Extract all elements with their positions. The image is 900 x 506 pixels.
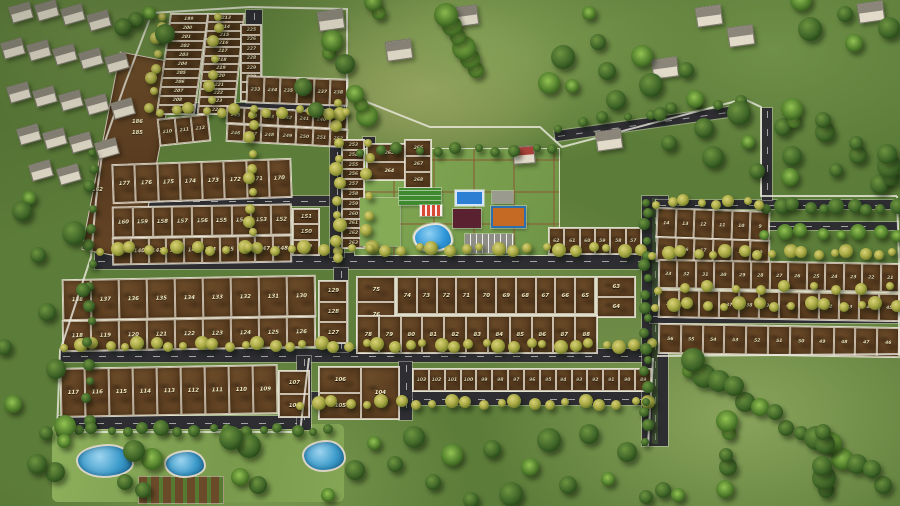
plot-136[interactable]: 136 <box>119 279 148 319</box>
plot-number: 81 <box>430 332 438 338</box>
plot-54[interactable]: 54 <box>702 325 724 354</box>
plot-117[interactable]: 117 <box>61 368 86 416</box>
plot-113[interactable]: 113 <box>157 367 182 415</box>
plot-175[interactable]: 175 <box>157 163 181 202</box>
villa-roof <box>59 91 80 103</box>
flowering-tree <box>744 197 752 205</box>
tree <box>308 102 324 118</box>
plot-number: 219 <box>216 66 226 71</box>
palm-tree <box>781 168 799 186</box>
plot-248[interactable]: 248 <box>261 126 279 144</box>
plot-104[interactable]: 104 <box>361 367 399 419</box>
villa-roof <box>7 83 28 95</box>
plot-number: 241 <box>299 116 309 121</box>
plot-number: 253 <box>348 142 357 147</box>
flowering-tree <box>527 338 537 348</box>
plot-number: 124 <box>239 330 250 336</box>
plot-94[interactable]: 94 <box>556 369 572 391</box>
flowering-tree <box>814 250 824 260</box>
plot-132[interactable]: 132 <box>231 277 260 317</box>
flowering-tree <box>711 200 721 210</box>
plot-92[interactable]: 92 <box>587 369 603 391</box>
plot-150[interactable]: 150 <box>293 224 319 239</box>
plot-102[interactable]: 102 <box>429 369 445 391</box>
plot-177[interactable]: 177 <box>112 164 136 203</box>
tree <box>639 302 651 314</box>
plot-90[interactable]: 90 <box>619 369 635 391</box>
plot-227[interactable]: 227 <box>241 44 261 54</box>
villa <box>42 127 68 149</box>
flowering-tree <box>154 50 162 58</box>
plot-14[interactable]: 14 <box>657 208 677 238</box>
tree <box>642 381 654 393</box>
plot-217[interactable]: 217 <box>204 47 241 55</box>
plot-107[interactable]: 107 <box>279 371 309 394</box>
tree <box>875 204 885 214</box>
plot-64[interactable]: 64 <box>597 297 635 317</box>
plot-50[interactable]: 50 <box>790 326 812 355</box>
tree <box>678 62 694 78</box>
plot-70[interactable]: 70 <box>476 277 496 314</box>
plot-173[interactable]: 173 <box>201 161 225 200</box>
villa <box>58 89 84 111</box>
plot-52[interactable]: 52 <box>746 325 768 354</box>
plot-219[interactable]: 219 <box>202 64 239 72</box>
plot-number: 65 <box>581 293 589 299</box>
plot-158[interactable]: 158 <box>152 207 172 237</box>
flowering-tree <box>428 400 436 408</box>
plot-number: 246 <box>231 130 241 135</box>
palm-tree <box>346 85 364 103</box>
plot-12[interactable]: 12 <box>694 209 714 239</box>
plot-30[interactable]: 30 <box>714 261 733 289</box>
flowering-tree <box>96 248 104 256</box>
plot-number: 57 <box>630 239 636 244</box>
flowering-tree <box>839 244 853 258</box>
plot-203[interactable]: 203 <box>165 50 203 59</box>
plot-48[interactable]: 48 <box>833 327 855 356</box>
palm-tree <box>817 228 829 240</box>
flowering-tree <box>106 341 116 351</box>
palm-tree <box>741 135 755 149</box>
plot-226[interactable]: 226 <box>241 35 261 45</box>
villa <box>86 9 112 31</box>
plot-number: 24 <box>831 274 837 279</box>
palm-tree <box>631 45 653 67</box>
plot-214[interactable]: 214 <box>207 22 244 30</box>
flowering-tree <box>677 194 689 206</box>
villa-roof <box>17 125 38 137</box>
lawn-court <box>399 188 441 205</box>
plot-number: 95 <box>545 378 551 383</box>
plot-number: 71 <box>463 293 471 299</box>
palm-tree <box>790 0 812 11</box>
plot-number: 112 <box>187 387 198 393</box>
flowering-tree <box>250 336 264 350</box>
flowering-tree <box>249 188 257 196</box>
plot-number: 113 <box>163 388 174 394</box>
plot-number: 54 <box>710 337 716 342</box>
plot-159[interactable]: 159 <box>133 207 153 237</box>
tree <box>81 393 91 403</box>
plot-number: 48 <box>841 339 847 344</box>
plot-number: 117 <box>67 390 78 396</box>
flowering-tree <box>545 400 555 410</box>
plot-131[interactable]: 131 <box>259 276 288 316</box>
palm-tree <box>231 468 249 486</box>
flowering-tree <box>681 297 693 309</box>
tree <box>644 356 652 364</box>
plot-number: 107 <box>288 380 299 386</box>
plot-46[interactable]: 46 <box>877 328 899 357</box>
flowering-tree <box>249 120 259 130</box>
plot-160[interactable]: 160 <box>113 207 133 237</box>
flowering-tree <box>364 211 374 221</box>
villa-roof <box>1 39 22 51</box>
plot-number: 47 <box>863 339 869 344</box>
plot-69[interactable]: 69 <box>496 277 516 314</box>
plot-number: 201 <box>181 34 191 39</box>
plot-53[interactable]: 53 <box>724 325 746 354</box>
plot-11[interactable]: 11 <box>713 210 733 240</box>
plot-205[interactable]: 205 <box>162 69 200 78</box>
plot-63[interactable]: 63 <box>597 277 635 297</box>
plot-number: 93 <box>576 378 582 383</box>
plot-206[interactable]: 206 <box>161 78 199 87</box>
villa <box>56 163 82 185</box>
villa-roof <box>79 49 100 61</box>
flowering-tree <box>60 344 68 352</box>
tree <box>83 359 95 371</box>
tree <box>356 149 364 157</box>
utility-pad <box>492 191 513 203</box>
tree <box>537 428 561 452</box>
plot-249[interactable]: 249 <box>278 127 296 145</box>
plot-133[interactable]: 133 <box>203 277 232 317</box>
plot-number: 126 <box>295 329 306 335</box>
plot-number: 69 <box>502 293 510 299</box>
flowering-tree <box>611 400 621 410</box>
plot-176[interactable]: 176 <box>135 164 159 203</box>
plot-33[interactable]: 33 <box>659 260 678 288</box>
plot-134[interactable]: 134 <box>175 278 204 318</box>
plot-67[interactable]: 67 <box>536 277 556 314</box>
plot-number: 135 <box>155 295 166 301</box>
palm-tree <box>686 90 704 108</box>
villa <box>385 38 414 61</box>
plot-225[interactable]: 225 <box>241 25 261 35</box>
plot-267[interactable]: 267 <box>405 156 431 172</box>
plot-number: 9 <box>758 224 761 229</box>
plot-number: 174 <box>185 178 196 184</box>
plot-130[interactable]: 130 <box>287 276 316 316</box>
plot-234[interactable]: 234 <box>263 77 281 104</box>
tree <box>890 198 900 214</box>
flowering-tree <box>342 108 350 116</box>
plot-number: 33 <box>665 272 671 277</box>
plot-number: 151 <box>300 214 311 220</box>
plot-170[interactable]: 170 <box>268 159 292 198</box>
plot-number: 96 <box>529 378 535 383</box>
plot-72[interactable]: 72 <box>437 277 457 314</box>
plot-number: 256 <box>348 172 357 177</box>
plot-233[interactable]: 233 <box>247 76 265 103</box>
plot-116[interactable]: 116 <box>85 368 110 416</box>
plot-number: 67 <box>542 293 550 299</box>
plot-91[interactable]: 91 <box>603 369 619 391</box>
tree <box>878 17 900 39</box>
plot-number: 10 <box>738 223 744 228</box>
pond <box>302 440 346 472</box>
plot-110[interactable]: 110 <box>229 366 254 414</box>
plot-137[interactable]: 137 <box>91 279 120 319</box>
plot-268[interactable]: 268 <box>405 172 431 188</box>
plot-number: 159 <box>137 219 148 225</box>
plot-number: 134 <box>183 295 194 301</box>
flowering-tree <box>831 249 839 257</box>
villa <box>32 85 58 107</box>
villa <box>26 39 52 61</box>
plot-number: 133 <box>211 294 222 300</box>
flowering-tree <box>752 250 762 260</box>
plot-number: 14 <box>663 220 669 225</box>
plot-number: 176 <box>141 180 152 186</box>
plot-218[interactable]: 218 <box>203 56 240 64</box>
plot-number: 79 <box>386 332 394 338</box>
tree <box>877 144 897 164</box>
plot-number: 255 <box>348 162 357 167</box>
plot-label: 186 <box>132 119 143 125</box>
plot-128[interactable]: 128 <box>319 302 347 323</box>
tree <box>272 423 282 433</box>
plot-204[interactable]: 204 <box>163 59 201 68</box>
plot-93[interactable]: 93 <box>572 369 588 391</box>
flowering-tree <box>891 300 900 312</box>
flowering-tree <box>651 304 659 312</box>
plot-number: 267 <box>413 162 422 167</box>
villa <box>695 4 724 27</box>
flowering-tree <box>732 296 746 310</box>
plot-255[interactable]: 255 <box>342 160 364 170</box>
flowering-tree <box>312 396 326 410</box>
plot-106[interactable]: 106 <box>319 367 361 393</box>
plot-129[interactable]: 129 <box>319 281 347 302</box>
flowering-tree <box>593 399 605 411</box>
plot-number: 227 <box>246 46 255 51</box>
flowering-tree <box>648 252 656 260</box>
plot-174[interactable]: 174 <box>179 162 203 201</box>
plot-number: 129 <box>327 288 338 294</box>
flowering-tree <box>462 244 472 254</box>
plot-number: 205 <box>176 71 186 76</box>
plot-number: 208 <box>172 98 182 103</box>
plot-73[interactable]: 73 <box>417 277 437 314</box>
flowering-tree <box>249 228 257 236</box>
flowering-tree <box>285 342 295 352</box>
plot-65[interactable]: 65 <box>575 277 595 314</box>
plot-156[interactable]: 156 <box>192 206 212 236</box>
villa-roof <box>105 53 126 65</box>
plot-199[interactable]: 199 <box>170 14 208 23</box>
plot-111[interactable]: 111 <box>205 366 230 414</box>
plot-number: 152 <box>275 217 286 223</box>
plot-number: 210 <box>162 129 172 135</box>
plot-number: 115 <box>115 389 126 395</box>
villa-roof <box>87 11 108 23</box>
plot-number: 206 <box>175 80 185 85</box>
plot-number: 249 <box>282 133 292 138</box>
tree <box>749 163 765 179</box>
plot-number: 259 <box>348 201 357 206</box>
plot-68[interactable]: 68 <box>516 277 536 314</box>
tree <box>798 17 822 41</box>
plot-label: 185 <box>132 130 143 136</box>
plot-number: 38 <box>746 302 752 307</box>
plot-157[interactable]: 157 <box>172 206 192 236</box>
plot-block-mid-row-170s: 177176175174173172171170 <box>111 158 292 204</box>
plot-202[interactable]: 202 <box>166 41 204 50</box>
plot-number: 217 <box>217 49 227 54</box>
plot-115[interactable]: 115 <box>109 368 134 416</box>
plot-number: 156 <box>196 218 207 224</box>
plot-49[interactable]: 49 <box>811 327 833 356</box>
flowering-tree <box>498 399 506 407</box>
plot-103[interactable]: 103 <box>413 369 429 391</box>
villa-roof <box>9 3 30 15</box>
villa <box>6 81 32 103</box>
tree <box>767 404 783 420</box>
plot-251[interactable]: 251 <box>312 128 330 146</box>
plot-number: 199 <box>184 16 194 21</box>
road-center-line <box>63 356 649 357</box>
tree <box>812 456 832 476</box>
flowering-tree <box>795 246 807 258</box>
plot-114[interactable]: 114 <box>133 367 158 415</box>
plot-108[interactable]: 108 <box>279 394 309 417</box>
plot-47[interactable]: 47 <box>855 327 877 356</box>
plot-207[interactable]: 207 <box>160 87 198 96</box>
plot-212[interactable]: 212 <box>191 114 210 142</box>
plot-number: 207 <box>174 89 184 94</box>
plot-100[interactable]: 100 <box>461 369 477 391</box>
tree <box>778 420 794 436</box>
plot-number: 114 <box>139 388 150 394</box>
villa-roof <box>61 5 82 17</box>
palm-tree <box>142 6 156 20</box>
plot-number: 98 <box>497 378 503 383</box>
villa-roof <box>57 165 78 177</box>
pond <box>164 450 206 478</box>
plot-number: 86 <box>539 332 547 338</box>
plot-number: 237 <box>317 89 327 94</box>
flowering-tree <box>379 245 391 257</box>
plot-74[interactable]: 74 <box>397 277 417 314</box>
plot-number: 225 <box>246 27 255 32</box>
plot-26[interactable]: 26 <box>788 262 807 290</box>
plot-13[interactable]: 13 <box>675 209 695 239</box>
villa-roof <box>596 129 621 141</box>
flowering-tree <box>538 340 546 348</box>
flowering-tree <box>208 70 218 80</box>
villa <box>78 47 104 69</box>
flowering-tree <box>654 287 662 295</box>
villa-roof <box>43 129 64 141</box>
plot-56[interactable]: 56 <box>659 324 681 353</box>
plot-98[interactable]: 98 <box>492 369 508 391</box>
plot-number: 84 <box>495 332 503 338</box>
plot-250[interactable]: 250 <box>295 127 313 145</box>
plot-229[interactable]: 229 <box>241 63 261 73</box>
flowering-tree <box>507 394 521 408</box>
plot-152[interactable]: 152 <box>271 204 291 234</box>
plot-number: 50 <box>798 338 804 343</box>
tree <box>114 18 132 36</box>
tree <box>639 366 649 376</box>
plot-228[interactable]: 228 <box>241 54 261 64</box>
tree <box>727 101 751 125</box>
flowering-tree <box>475 243 483 251</box>
plot-51[interactable]: 51 <box>768 326 790 355</box>
villa <box>317 8 346 31</box>
plot-number: 80 <box>408 332 416 338</box>
tree <box>475 144 483 152</box>
plot-109[interactable]: 109 <box>253 365 278 413</box>
palm-tree <box>601 472 615 486</box>
plot-number: 26 <box>794 274 800 279</box>
plot-99[interactable]: 99 <box>476 369 492 391</box>
villa <box>52 43 78 65</box>
plot-75[interactable]: 75 <box>357 277 395 302</box>
tree <box>828 198 844 214</box>
palm-tree <box>57 434 71 448</box>
plot-112[interactable]: 112 <box>181 366 206 414</box>
plot-97[interactable]: 97 <box>508 369 524 391</box>
multi-court <box>491 206 526 228</box>
plot-number: 130 <box>295 293 306 299</box>
tree <box>135 482 151 498</box>
flowering-tree <box>207 35 219 47</box>
plot-96[interactable]: 96 <box>524 369 540 391</box>
plot-155[interactable]: 155 <box>212 205 232 235</box>
plot-101[interactable]: 101 <box>445 369 461 391</box>
tree <box>30 247 46 263</box>
plot-number: 61 <box>569 239 575 244</box>
plot-95[interactable]: 95 <box>540 369 556 391</box>
tree <box>837 6 853 22</box>
plot-number: 56 <box>667 336 673 341</box>
flowering-tree <box>318 244 330 256</box>
plot-block-south-row-89: 1031021011009998979695949392919089 <box>412 368 652 392</box>
plot-number: 238 <box>334 90 344 95</box>
plot-71[interactable]: 71 <box>456 277 476 314</box>
tree <box>376 145 386 155</box>
tree <box>83 300 95 312</box>
plot-246[interactable]: 246 <box>227 124 245 142</box>
plot-213[interactable]: 213 <box>207 14 244 22</box>
plot-10[interactable]: 10 <box>731 211 751 241</box>
plot-135[interactable]: 135 <box>147 278 176 318</box>
flowering-tree <box>579 394 593 408</box>
palm-tree <box>582 6 596 20</box>
road-center-line <box>767 111 768 197</box>
plot-number: 53 <box>732 337 738 342</box>
flowering-tree <box>214 23 224 33</box>
villa <box>0 37 26 59</box>
plot-66[interactable]: 66 <box>555 277 575 314</box>
tree <box>598 62 616 80</box>
flowering-tree <box>754 200 764 210</box>
plot-151[interactable]: 151 <box>293 209 319 224</box>
